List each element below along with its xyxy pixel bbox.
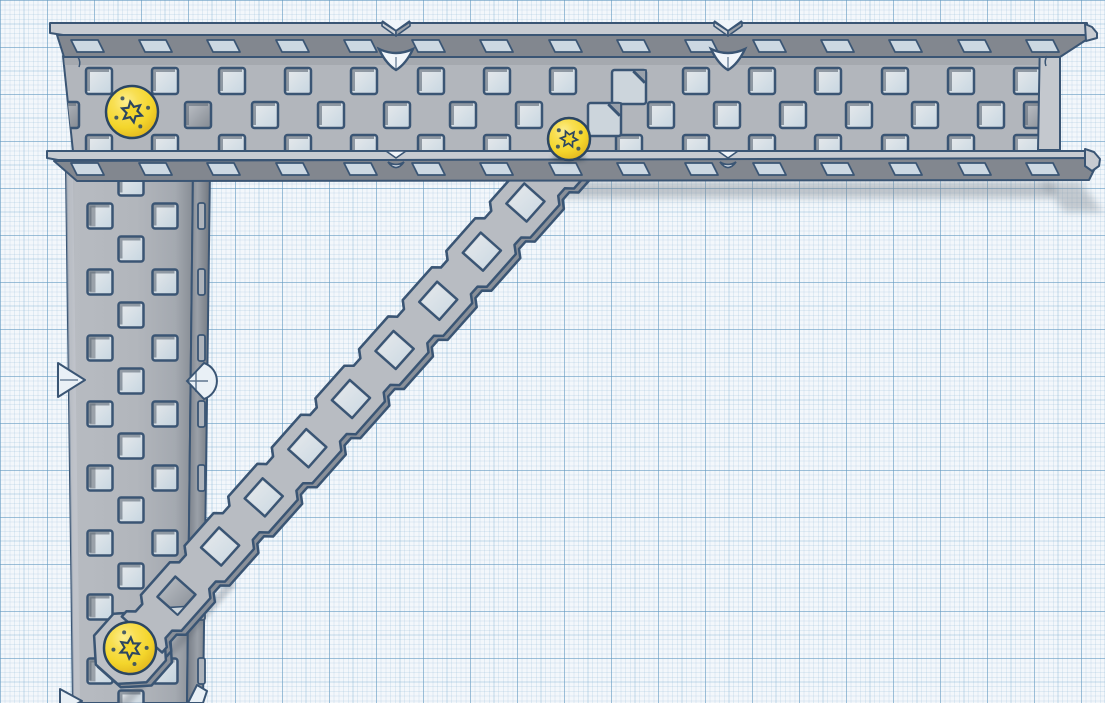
hole-sheen [914, 104, 937, 127]
hole-sheen [1016, 70, 1039, 93]
flange-slot [958, 163, 991, 175]
flange-slot [276, 40, 309, 52]
flange-slot [480, 163, 513, 175]
flange-slot [821, 163, 854, 175]
screw-tick [114, 116, 118, 120]
hole-sheen [685, 70, 708, 93]
flange-slot [617, 40, 650, 52]
hole-sheen [120, 565, 142, 587]
screw-bottom[interactable] [104, 622, 156, 674]
hole-sheen [154, 70, 177, 93]
vbeam-flange-slot [198, 335, 205, 361]
flange-slot [549, 40, 582, 52]
hole-sheen [154, 271, 176, 293]
flange-slot [480, 40, 513, 52]
flange-slot [207, 40, 240, 52]
hole-sheen [817, 70, 840, 93]
screw-tick [556, 145, 560, 149]
workplane-scene[interactable] [0, 0, 1105, 703]
hole-sheen [782, 104, 805, 127]
hbeam-top-bevel [50, 23, 1087, 35]
flange-slot [753, 163, 786, 175]
flange-slot [958, 40, 991, 52]
screw-tick [122, 630, 126, 634]
flange-slot [71, 163, 104, 175]
hole-sheen [552, 70, 575, 93]
hole-sheen [154, 467, 176, 489]
flange-slot [1026, 40, 1059, 52]
flange-slot [685, 163, 718, 175]
hole-sheen [254, 104, 277, 127]
hole-sheen [154, 337, 176, 359]
hole-sheen [120, 304, 142, 326]
hole-sheen [452, 104, 475, 127]
hole-sheen [320, 104, 343, 127]
hole-sheen [884, 70, 907, 93]
vbeam-flange-slot [198, 203, 205, 229]
screw-tick [111, 648, 115, 652]
hole-sheen [716, 104, 739, 127]
flange-slot [753, 40, 786, 52]
screw-middle[interactable] [548, 118, 590, 160]
flange-slot [344, 40, 377, 52]
hole-sheen [353, 70, 376, 93]
flange-slot [617, 163, 650, 175]
flange-slot [276, 163, 309, 175]
hole-sheen [120, 435, 142, 457]
screw-tick [579, 130, 583, 134]
screw-tick [138, 124, 142, 128]
hole-sheen [88, 70, 111, 93]
screw-tick [145, 646, 149, 650]
screw-tick [132, 662, 136, 666]
flange-slot [889, 163, 922, 175]
flange-slot [889, 40, 922, 52]
hole-sheen [154, 532, 176, 554]
vbeam-flange-slot [198, 658, 205, 684]
hole-sheen [848, 104, 871, 127]
vbeam-flange-slot [198, 401, 205, 427]
hbeam-top-flange-tip [1085, 24, 1097, 41]
flange-slot [412, 40, 445, 52]
hole-sheen [120, 499, 142, 521]
hole-sheen [287, 70, 310, 93]
hole-sheen [518, 104, 541, 127]
hbeam-flange-shade [64, 57, 1040, 65]
screw-tick [576, 147, 580, 151]
flange-slot [207, 163, 240, 175]
vbeam-flange-slot [198, 465, 205, 491]
screw-tick [120, 96, 124, 100]
hole-sheen [221, 70, 244, 93]
hole-sheen [154, 403, 176, 425]
flange-slot [139, 40, 172, 52]
hole-sheen [980, 104, 1003, 127]
hole-sheen [950, 70, 973, 93]
hole-sheen [120, 238, 142, 260]
screw-tick [557, 128, 561, 132]
flange-slot [139, 163, 172, 175]
hole-sheen [650, 104, 673, 127]
hole-sheen [386, 104, 409, 127]
cast-shadows [557, 182, 1103, 212]
flange-slot [1026, 163, 1059, 175]
flange-slot [344, 163, 377, 175]
hole-sheen [751, 70, 774, 93]
hole-sheen [486, 70, 509, 93]
hole-sheen [420, 70, 443, 93]
flange-slot [412, 163, 445, 175]
flange-slot [549, 163, 582, 175]
flange-slot [71, 40, 104, 52]
vbeam-flange-slot [198, 269, 205, 295]
flange-slot [821, 40, 854, 52]
hole-sheen [154, 205, 176, 227]
hbeam-bottom-flange-tip [1085, 149, 1100, 171]
cad-viewport[interactable] [0, 0, 1105, 703]
hole-sheen [120, 370, 142, 392]
screw-top-left[interactable] [106, 86, 158, 138]
screw-tick [146, 106, 150, 110]
beam-shadow [557, 182, 1055, 198]
